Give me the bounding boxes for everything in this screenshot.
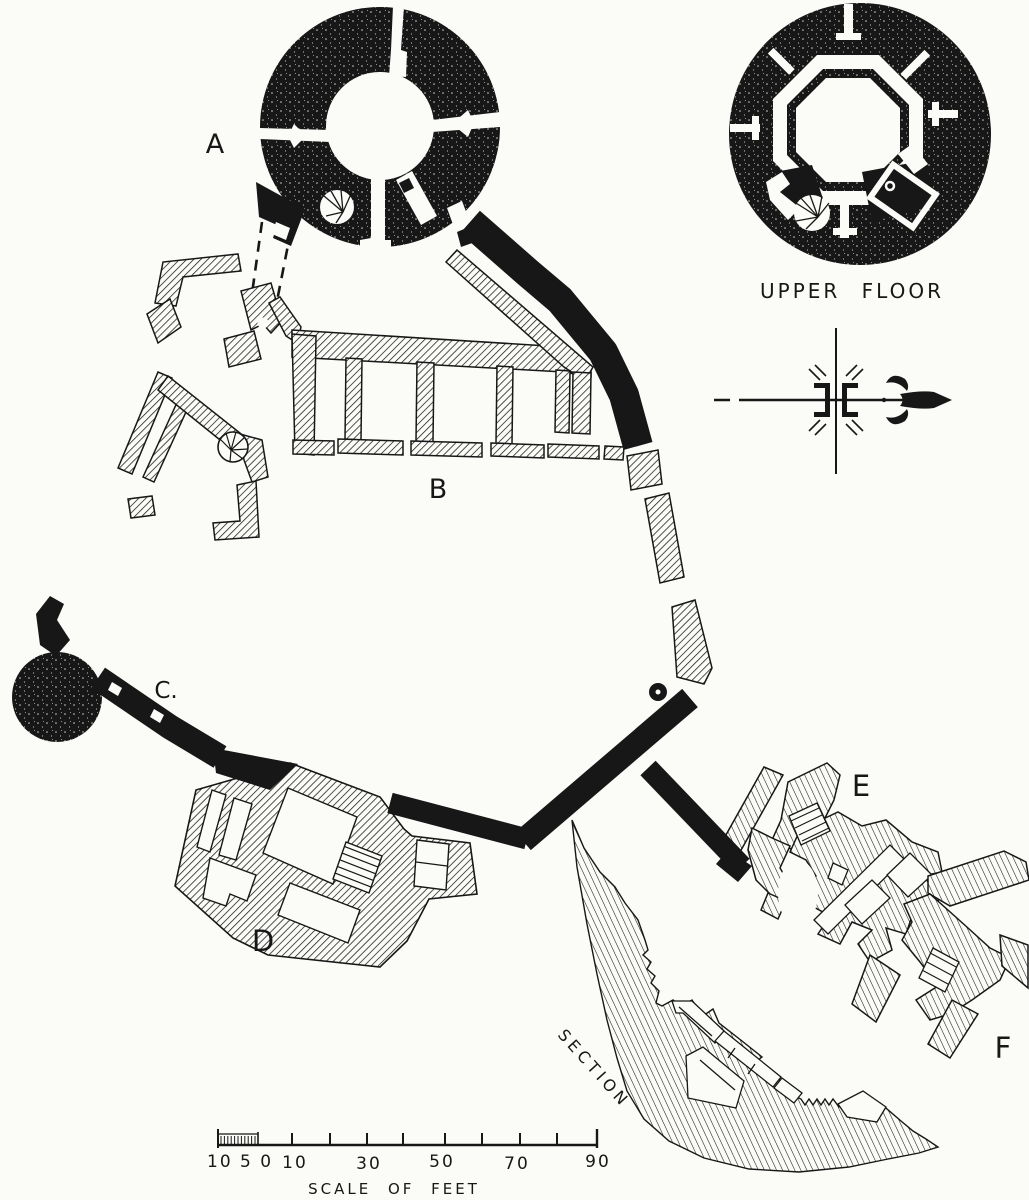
label-keep-a: A: [206, 129, 225, 160]
gatehouse-d: [175, 763, 477, 967]
keep-a-plan: [256, 6, 500, 250]
scale-caption: SCALE OF FEET: [308, 1180, 480, 1198]
label-gatehouse-d: D: [252, 924, 274, 958]
castle-plan-sheet: A B C. D E F UPPER FLOOR SECTION 10 5 0 …: [0, 0, 1029, 1200]
spiral-stair-icon: [218, 432, 248, 462]
hall-range-b: [292, 250, 624, 460]
spiral-stair-icon: [794, 195, 830, 231]
upper-floor-plan: [729, 3, 991, 265]
scale-tick-90: 90: [585, 1152, 611, 1172]
label-range-f: F: [995, 1031, 1012, 1065]
label-wall-c: C.: [154, 678, 177, 704]
scale-tick-10: 10: [282, 1153, 308, 1173]
round-tower: [12, 596, 102, 742]
label-hall-b: B: [429, 474, 448, 505]
scale-bar: [218, 1129, 598, 1148]
scale-left-label: 10 5 0: [207, 1152, 273, 1172]
scale-tick-50: 50: [429, 1152, 455, 1172]
plan-drawing: A B C. D E F UPPER FLOOR SECTION 10 5 0 …: [0, 0, 1029, 1200]
curtain-walls: [12, 222, 752, 882]
scale-tick-30: 30: [356, 1154, 382, 1174]
scale-tick-70: 70: [504, 1154, 530, 1174]
north-arrow: [714, 328, 952, 474]
upper-floor-caption: UPPER FLOOR: [760, 279, 944, 303]
spiral-stair-icon: [320, 190, 354, 224]
label-range-e: E: [852, 769, 870, 803]
